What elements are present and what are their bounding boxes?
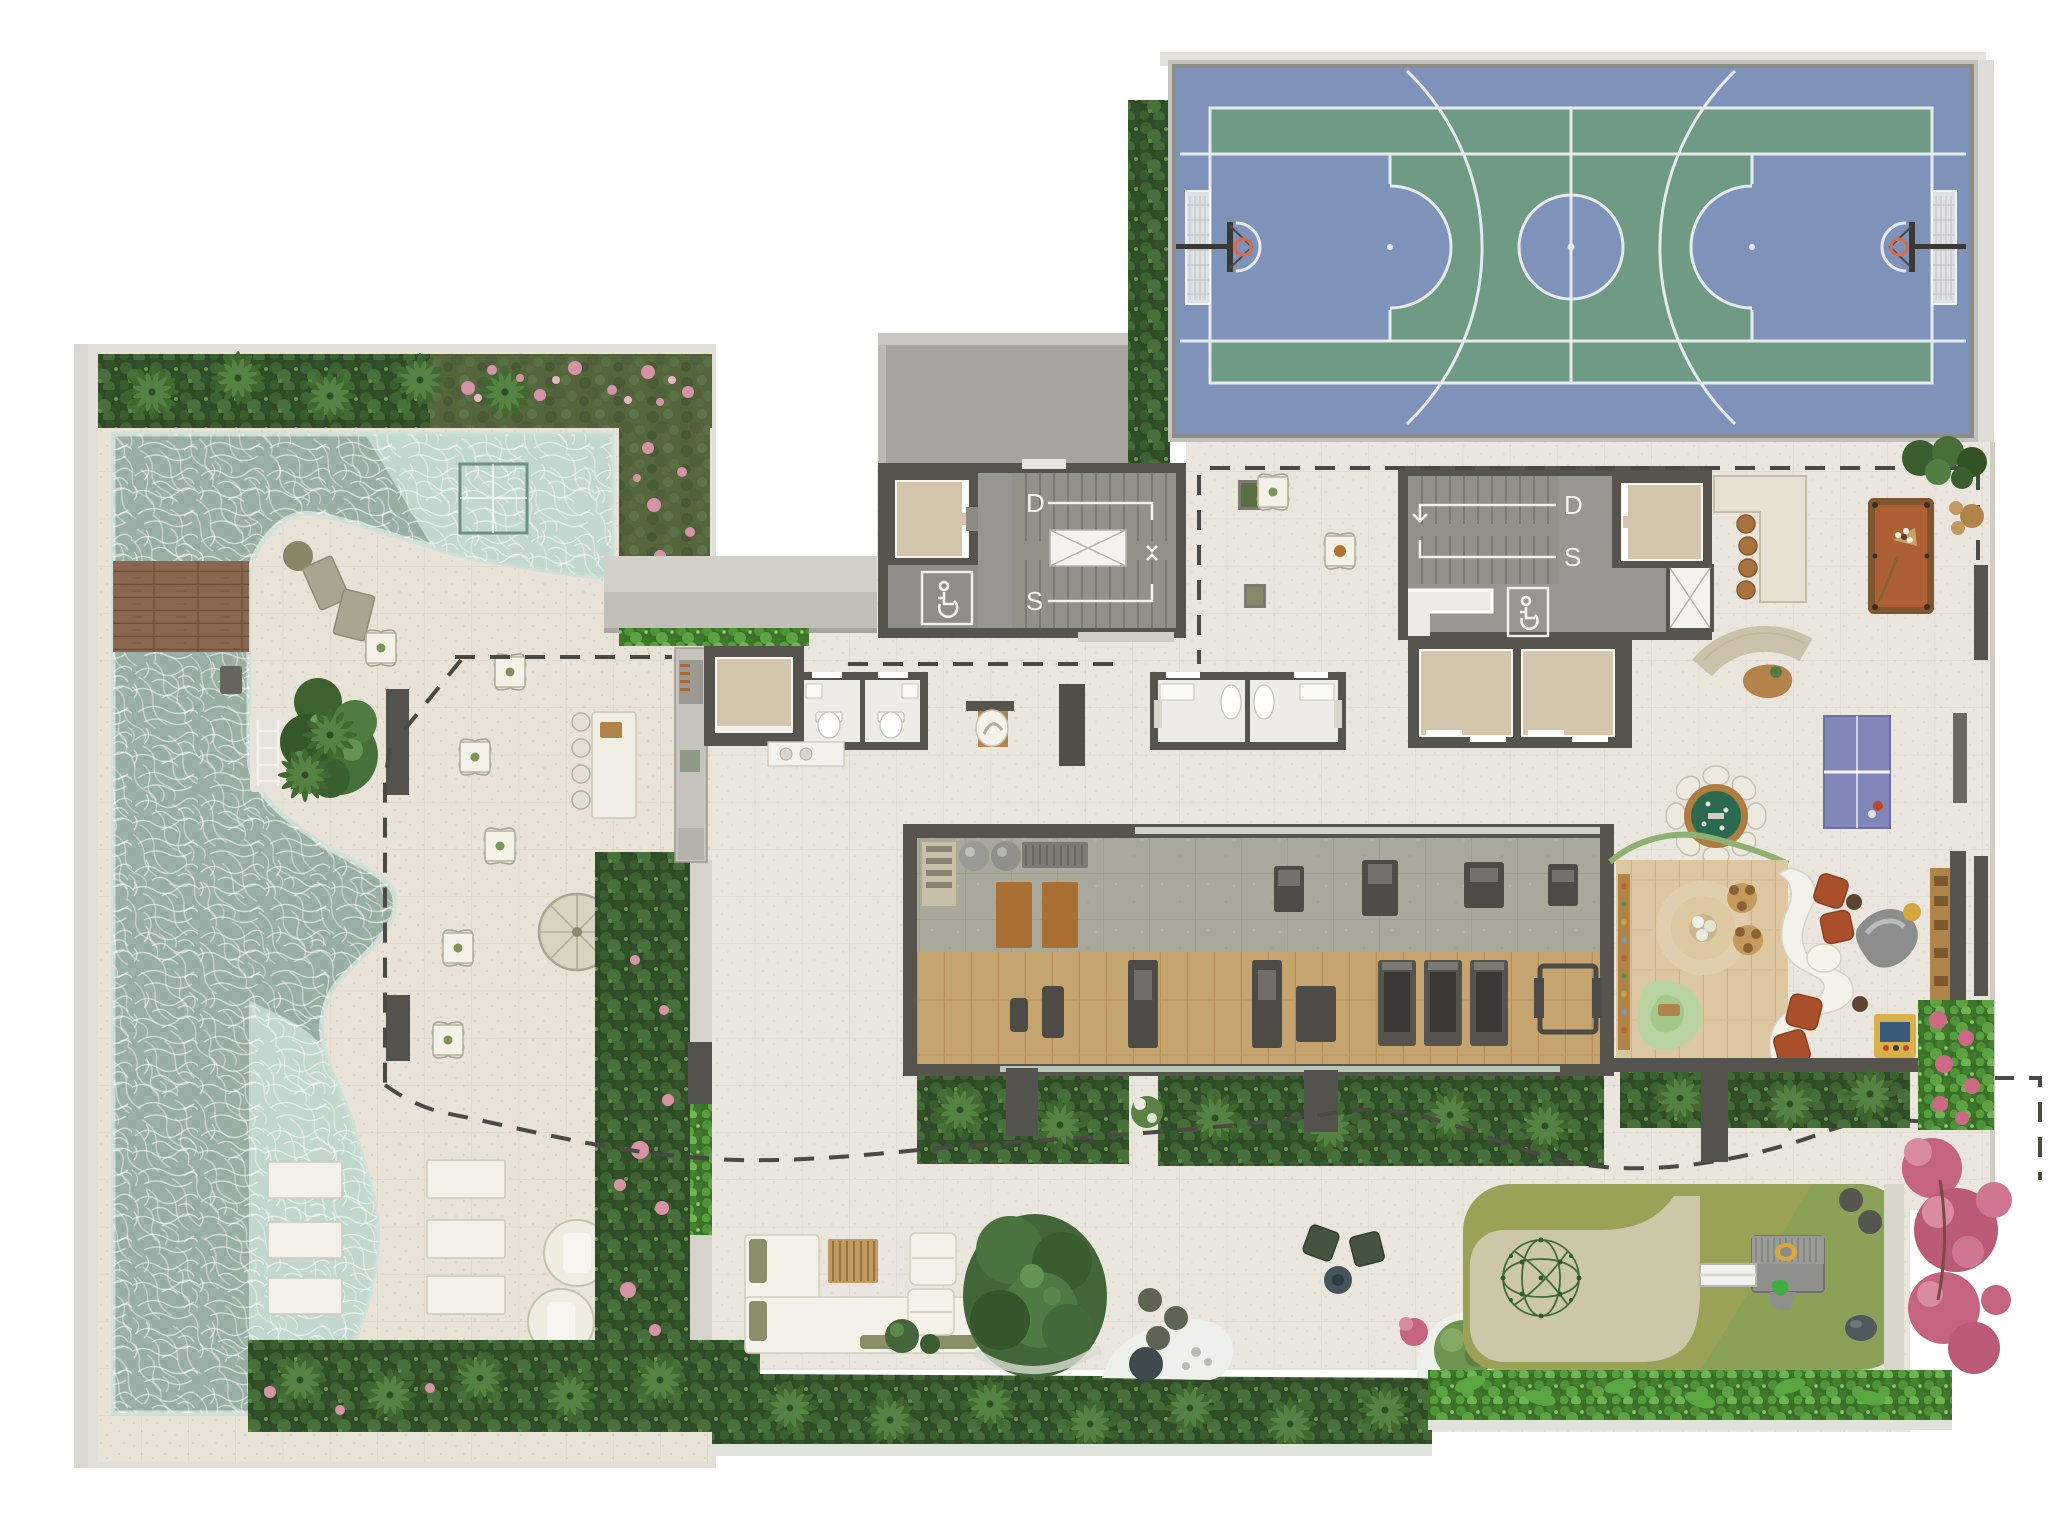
svg-text:D: D	[1026, 488, 1045, 518]
svg-text:S: S	[1564, 542, 1581, 572]
svg-text:D: D	[1564, 490, 1583, 520]
svg-text:S: S	[1026, 586, 1043, 616]
